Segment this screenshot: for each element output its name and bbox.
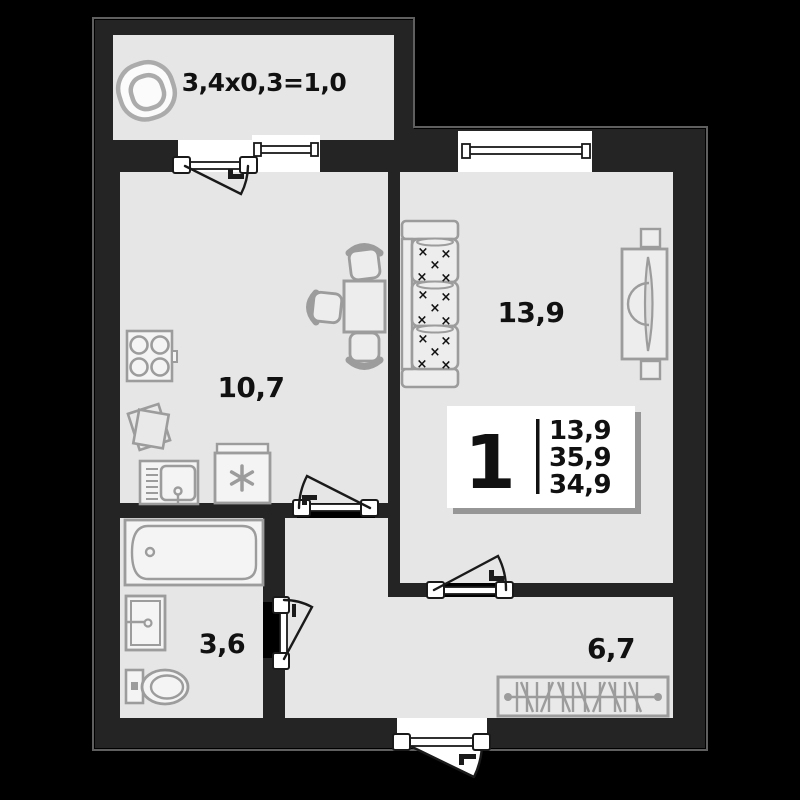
balcony-left-wall xyxy=(95,20,113,142)
bedroom-hallway-wall-left xyxy=(400,583,430,597)
svg-text:×: × xyxy=(417,270,428,285)
svg-text:×: × xyxy=(417,313,428,328)
wardrobe-icon xyxy=(498,677,668,716)
svg-text:×: × xyxy=(418,245,429,260)
svg-text:×: × xyxy=(441,358,452,373)
balcony-top-wall xyxy=(95,20,414,35)
svg-text:×: × xyxy=(441,290,452,305)
kitchen-bedroom-wall xyxy=(388,172,400,597)
kitchen-area-label: 10,7 xyxy=(217,371,284,404)
badge-reduced-area: 34,9 xyxy=(549,470,611,500)
window-jamb xyxy=(462,144,470,158)
door-handle xyxy=(292,604,296,617)
washbasin-icon xyxy=(126,596,165,650)
svg-text:×: × xyxy=(430,301,441,316)
svg-text:×: × xyxy=(441,334,452,349)
door-swing xyxy=(404,743,482,777)
floor-plan: ×× ×× × ×× ×× × ×× ×× × xyxy=(0,0,800,800)
door-track xyxy=(436,587,502,594)
window-jamb xyxy=(582,144,590,158)
door-track xyxy=(401,738,483,746)
door-hinge-block xyxy=(473,734,490,750)
door-hinge-block xyxy=(393,734,410,750)
sofa-icon: ×× ×× × ×× ×× × ×× ×× × xyxy=(402,221,458,387)
badge-total-area: 35,9 xyxy=(549,443,611,473)
toilet-icon xyxy=(126,670,188,704)
window-jamb xyxy=(311,143,318,156)
sofa-armrest xyxy=(402,221,458,239)
hallway-area-label: 6,7 xyxy=(587,632,635,665)
chair-seat xyxy=(350,333,379,361)
svg-text:×: × xyxy=(418,332,429,347)
floor-plan-svg: ×× ×× × ×× ×× × ×× ×× × xyxy=(0,0,800,800)
svg-text:×: × xyxy=(417,357,428,372)
bathtub-icon xyxy=(125,520,263,585)
bedroom-hallway-wall-right xyxy=(510,583,673,597)
badge-divider xyxy=(536,419,540,494)
bathroom-area-label: 3,6 xyxy=(199,629,245,660)
left-wall xyxy=(95,140,120,748)
badge-living-area: 13,9 xyxy=(549,416,611,446)
window-glass xyxy=(257,146,315,153)
kitchen-sink-icon xyxy=(140,461,198,504)
info-badge: 1 13,9 35,9 34,9 xyxy=(447,406,641,514)
svg-text:×: × xyxy=(441,247,452,262)
svg-text:×: × xyxy=(418,288,429,303)
sofa-backrest xyxy=(402,239,412,369)
table-top xyxy=(344,281,385,332)
right-wall xyxy=(673,129,705,748)
entry-door xyxy=(393,718,490,777)
corridor-floor xyxy=(285,518,388,597)
bedroom-window xyxy=(458,131,592,172)
kitchen-window xyxy=(252,135,320,172)
tv-dresser-icon xyxy=(622,229,667,379)
door-hinge-block xyxy=(496,582,513,598)
tv-panel xyxy=(645,257,653,351)
balcony-label: 3,4x0,3=1,0 xyxy=(182,68,347,97)
toilet-button xyxy=(131,682,138,690)
bedroom-area-label: 13,9 xyxy=(497,296,564,329)
speaker-block xyxy=(641,361,660,379)
badge-room-count: 1 xyxy=(464,420,516,506)
window-jamb xyxy=(254,143,261,156)
speaker-block xyxy=(641,229,660,247)
svg-text:×: × xyxy=(430,258,441,273)
svg-text:×: × xyxy=(430,345,441,360)
window-glass xyxy=(466,147,586,154)
door-hinge-block xyxy=(293,500,310,516)
door-hinge-block xyxy=(173,157,190,173)
chair-seat xyxy=(312,292,343,324)
bathroom-right-wall-upper xyxy=(263,518,285,602)
svg-text:×: × xyxy=(441,271,452,286)
chair-seat xyxy=(348,248,380,280)
svg-text:×: × xyxy=(441,314,452,329)
stove-icon xyxy=(127,331,177,381)
balcony-right-wall xyxy=(394,20,414,142)
refrigerator-icon xyxy=(215,444,270,503)
